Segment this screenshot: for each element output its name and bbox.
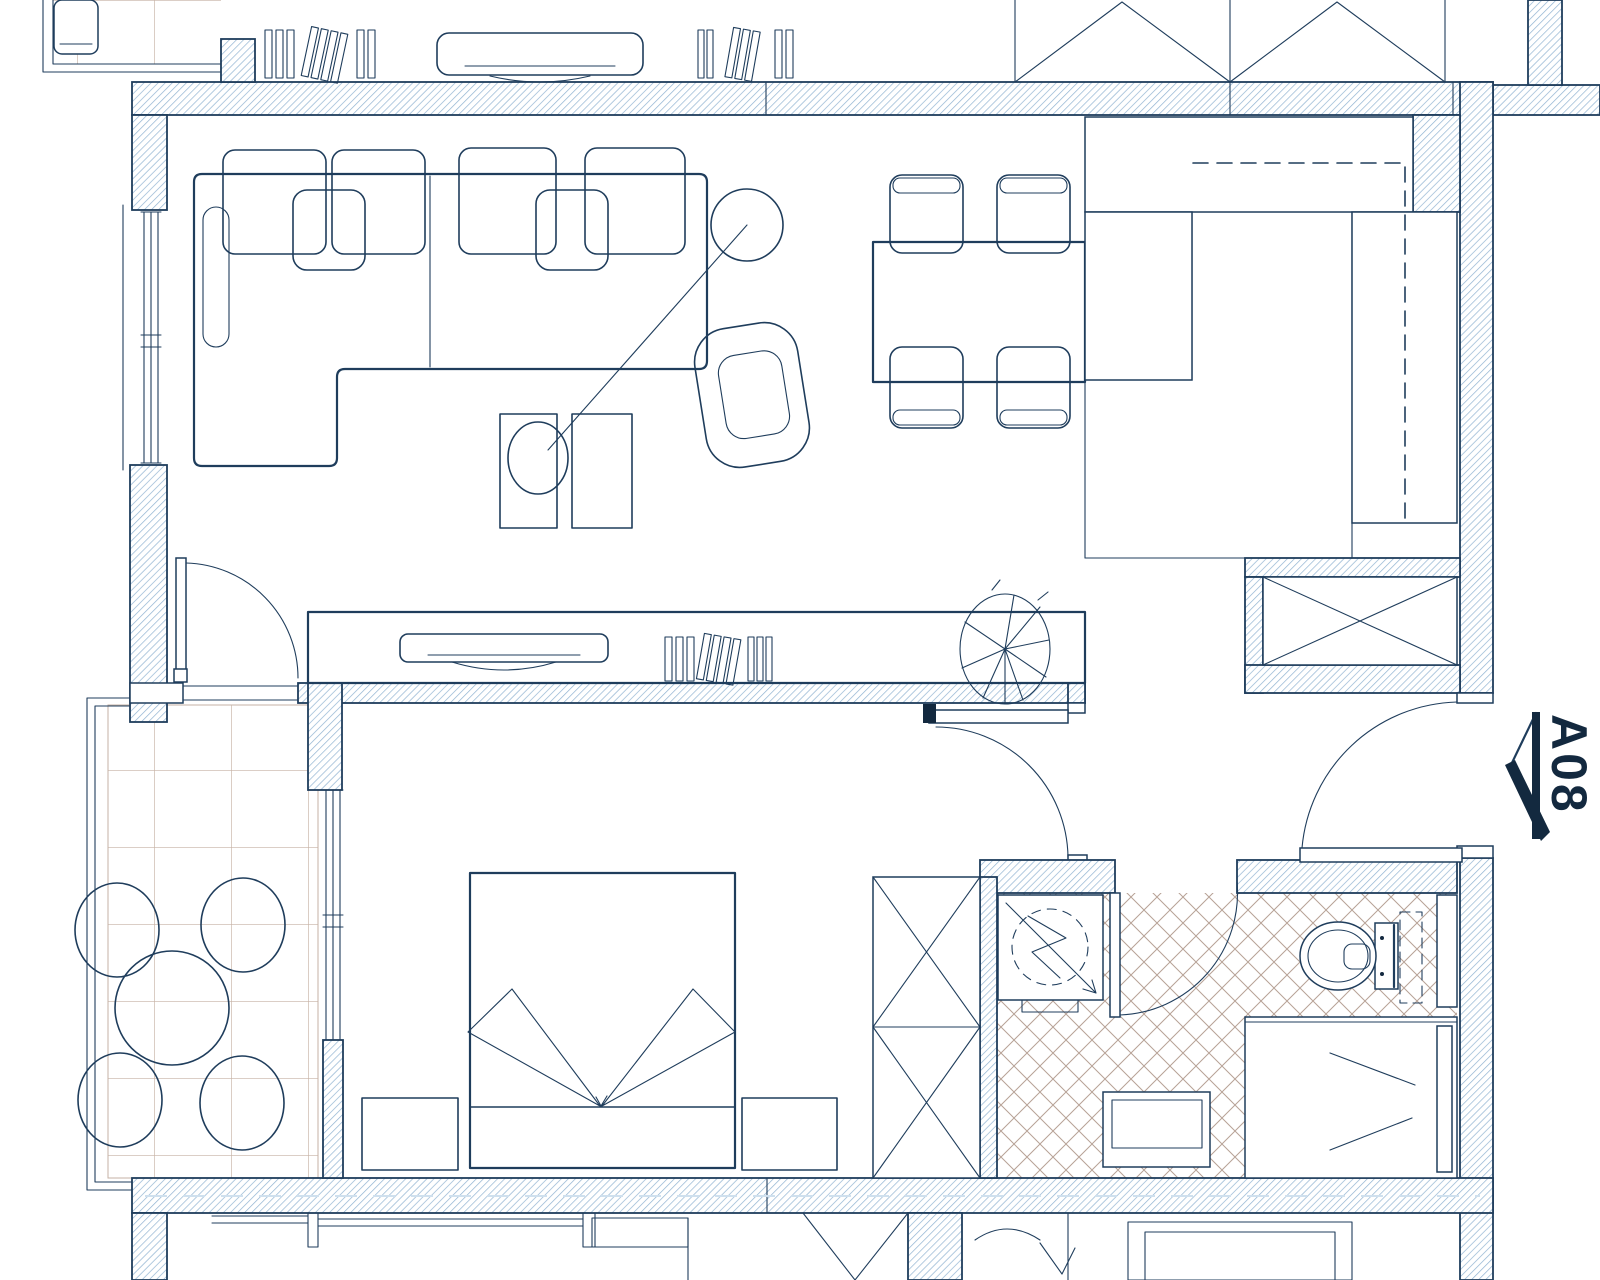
wall-bathroom-top-left — [980, 860, 1115, 893]
entry-jamb-top — [1457, 693, 1493, 703]
sink-vanity — [1103, 1092, 1210, 1167]
armchair — [690, 318, 815, 473]
nightstand — [742, 1098, 837, 1170]
wall-neighbor-pier-top-left — [221, 39, 255, 82]
wall-left-pier-upper — [132, 115, 167, 210]
living-room-window — [123, 205, 161, 470]
sofa-back-cushion — [459, 148, 556, 254]
wall-right-corner-block — [1413, 115, 1460, 212]
living-room-furniture — [194, 148, 1085, 704]
hall-closet — [1263, 577, 1457, 665]
entry-door — [1300, 702, 1462, 862]
sofa-back-cushion — [332, 150, 425, 254]
wall-divider — [298, 683, 1085, 703]
floor-plan-canvas: A08 — [0, 0, 1600, 1280]
wall-divider-stub — [130, 683, 183, 703]
side-table — [572, 414, 632, 528]
double-bed — [468, 873, 735, 1168]
wall-neighbor-pier-bottom — [908, 1213, 962, 1280]
wall-bathroom-top-right — [1237, 860, 1457, 893]
wall-bottom-left-pier — [132, 1213, 167, 1280]
sofa-lumbar-pillow — [293, 190, 365, 270]
dining-table — [873, 242, 1085, 382]
bedroom-door — [923, 704, 1068, 857]
entry-label-underline — [1532, 712, 1540, 839]
kitchen-counter-top — [1085, 117, 1413, 212]
bedroom-furniture — [362, 873, 980, 1178]
wall-right-upper — [1460, 82, 1493, 693]
wall-bathroom-left — [980, 877, 997, 1178]
wall-bedroom-left-pier-lower — [323, 1040, 343, 1178]
blanket-fold — [468, 989, 735, 1106]
wall-right-lower — [1460, 858, 1493, 1280]
wall-closet-bottom — [1245, 665, 1460, 693]
media-console — [308, 612, 1085, 685]
dining-chair — [890, 347, 963, 428]
wall-top — [132, 82, 1493, 115]
sofa-back-cushion — [585, 148, 685, 254]
neighbor-wardrobes-top — [1015, 0, 1445, 82]
sectional-sofa — [194, 148, 707, 466]
sofa-back-cushion — [223, 150, 326, 254]
nightstand — [362, 1098, 458, 1170]
wall-bedroom-left-pier-upper — [308, 683, 342, 790]
balcony-door — [174, 558, 298, 700]
kitchen — [1085, 117, 1457, 558]
floor-plan-drawing: A08 — [0, 0, 1600, 1280]
entry-marker: A08 — [1505, 712, 1597, 841]
wall-top-right-ext — [1493, 85, 1600, 115]
tv — [400, 634, 608, 662]
neighbor-tv — [437, 33, 643, 82]
wall-hall-cap-top — [1068, 683, 1085, 703]
balcony-tile-floor — [108, 705, 318, 1178]
bedroom-window — [323, 790, 343, 1040]
wardrobe-x-bedroom — [873, 877, 980, 1178]
side-table — [500, 414, 557, 528]
kitchen-counter-left — [1085, 212, 1192, 380]
neighbor-bookshelf-row — [265, 27, 793, 84]
sofa-lumbar-pillow — [536, 190, 608, 270]
dining-chair — [997, 347, 1070, 428]
books — [665, 633, 772, 685]
dining-set — [873, 175, 1085, 428]
arc-floor-lamp — [508, 189, 783, 494]
unit-label: A08 — [1541, 714, 1597, 815]
wall-hall-jamb-top — [1068, 703, 1085, 713]
neighbor-items-bottom — [592, 1213, 1352, 1280]
washing-machine — [998, 895, 1103, 1012]
wall-neighbor-top-right — [1528, 0, 1562, 85]
entry-arrow-upper-line — [1509, 713, 1536, 769]
sofa-armrest — [203, 207, 229, 347]
wall-closet-top — [1245, 558, 1460, 577]
shower — [1245, 1017, 1457, 1178]
